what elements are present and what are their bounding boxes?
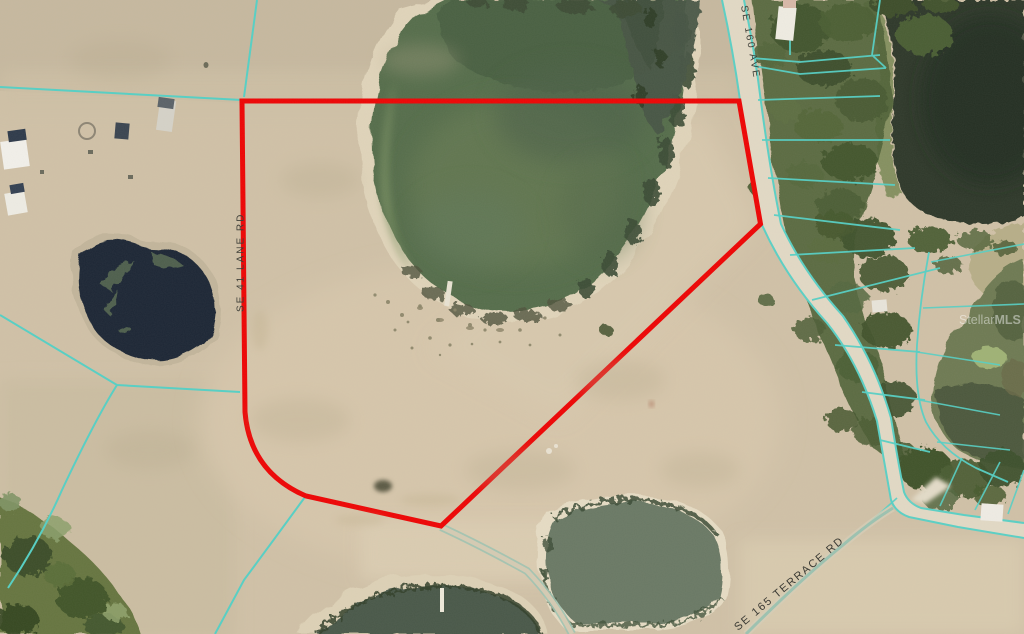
svg-text:StellarMLS: StellarMLS bbox=[959, 313, 1021, 327]
svg-text:SE 41 LANE RD: SE 41 LANE RD bbox=[236, 213, 247, 312]
